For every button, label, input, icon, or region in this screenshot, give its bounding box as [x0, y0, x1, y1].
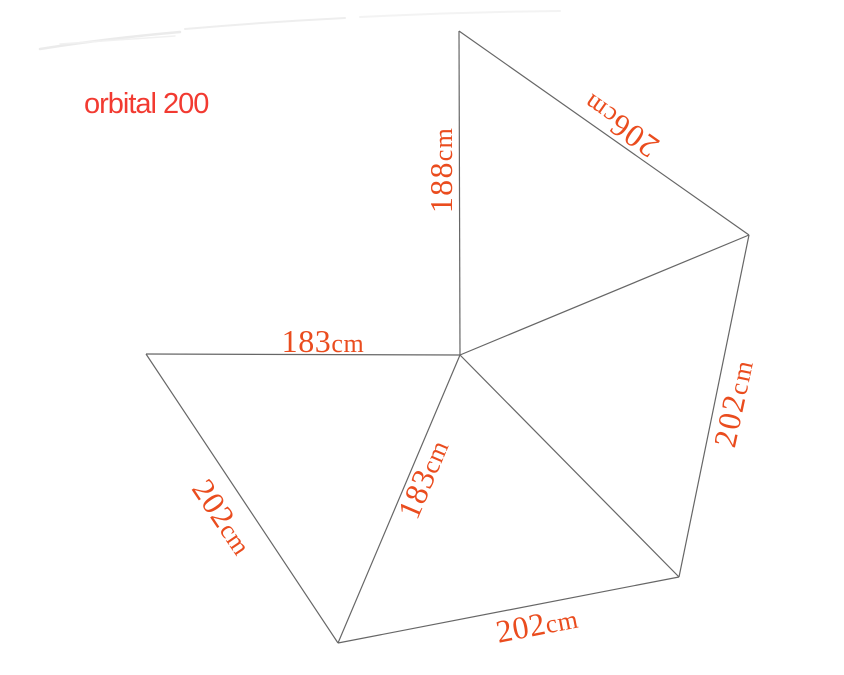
svg-text:188cm: 188cm	[423, 127, 459, 213]
svg-text:202cm: 202cm	[493, 599, 581, 650]
svg-text:183cm: 183cm	[282, 323, 365, 359]
svg-text:202cm: 202cm	[706, 355, 760, 450]
svg-text:orbital 200: orbital 200	[84, 88, 208, 120]
svg-text:183cm: 183cm	[390, 434, 455, 524]
svg-text:206cm: 206cm	[574, 87, 665, 166]
svg-text:202cm: 202cm	[185, 472, 261, 561]
